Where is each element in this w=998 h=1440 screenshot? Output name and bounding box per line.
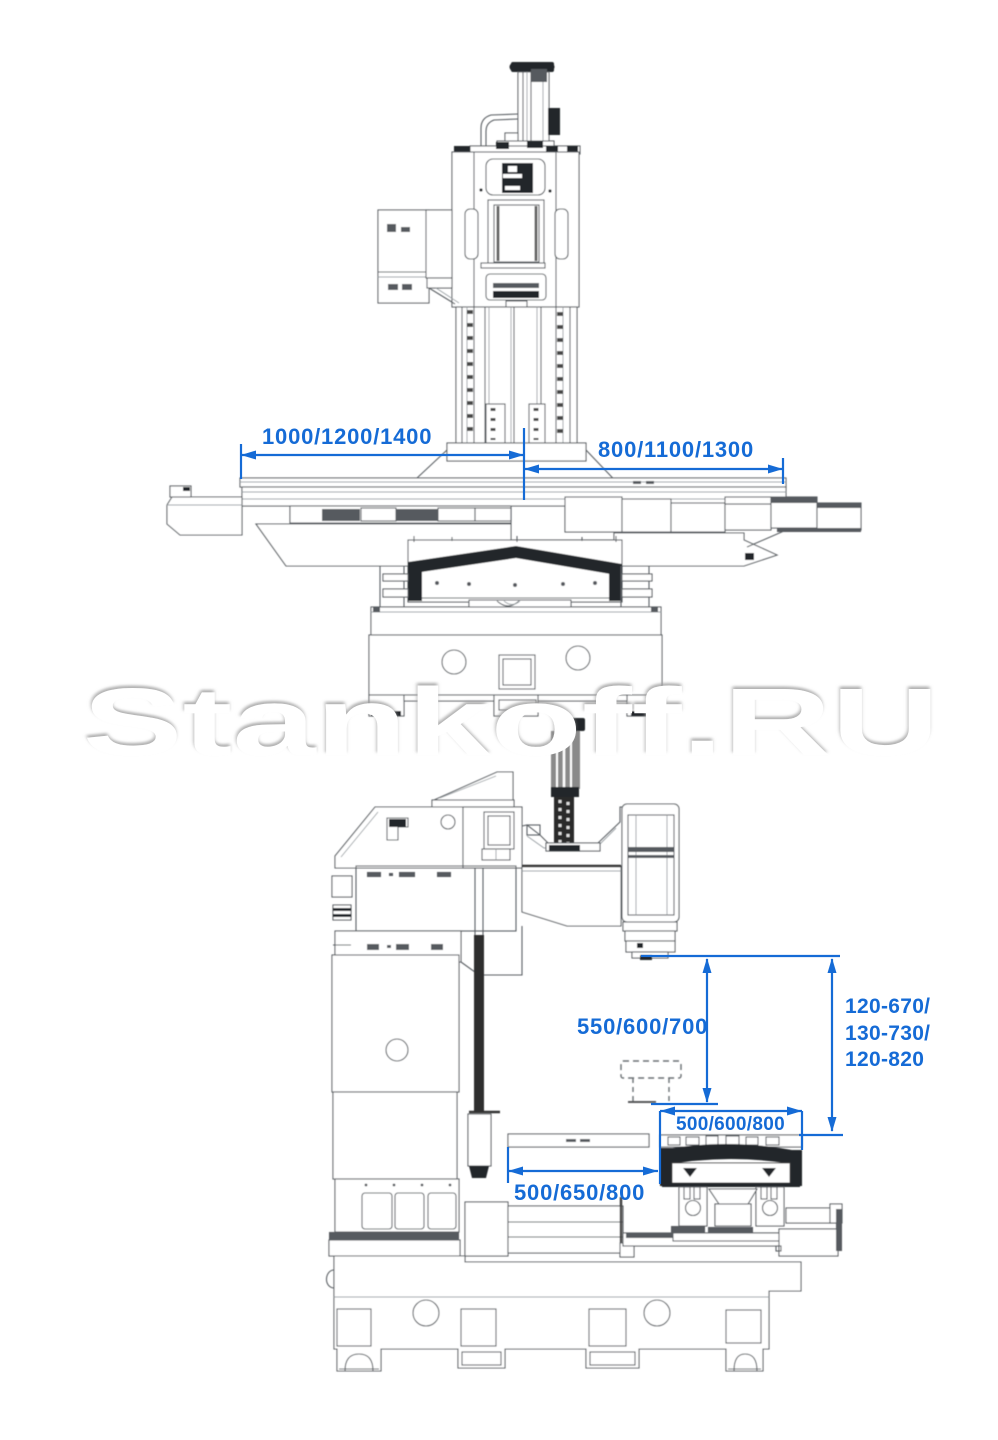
svg-text:500/600/800: 500/600/800 — [676, 1114, 785, 1135]
svg-text:800/1100/1300: 800/1100/1300 — [598, 437, 754, 462]
svg-text:130-730/: 130-730/ — [845, 1022, 930, 1045]
svg-text:120-670/: 120-670/ — [845, 995, 930, 1018]
svg-text:Stankoff.RU: Stankoff.RU — [83, 668, 940, 776]
svg-text:1000/1200/1400: 1000/1200/1400 — [262, 424, 432, 449]
svg-text:120-820: 120-820 — [845, 1048, 924, 1071]
svg-text:550/600/700: 550/600/700 — [577, 1014, 708, 1039]
svg-text:500/650/800: 500/650/800 — [514, 1180, 645, 1205]
